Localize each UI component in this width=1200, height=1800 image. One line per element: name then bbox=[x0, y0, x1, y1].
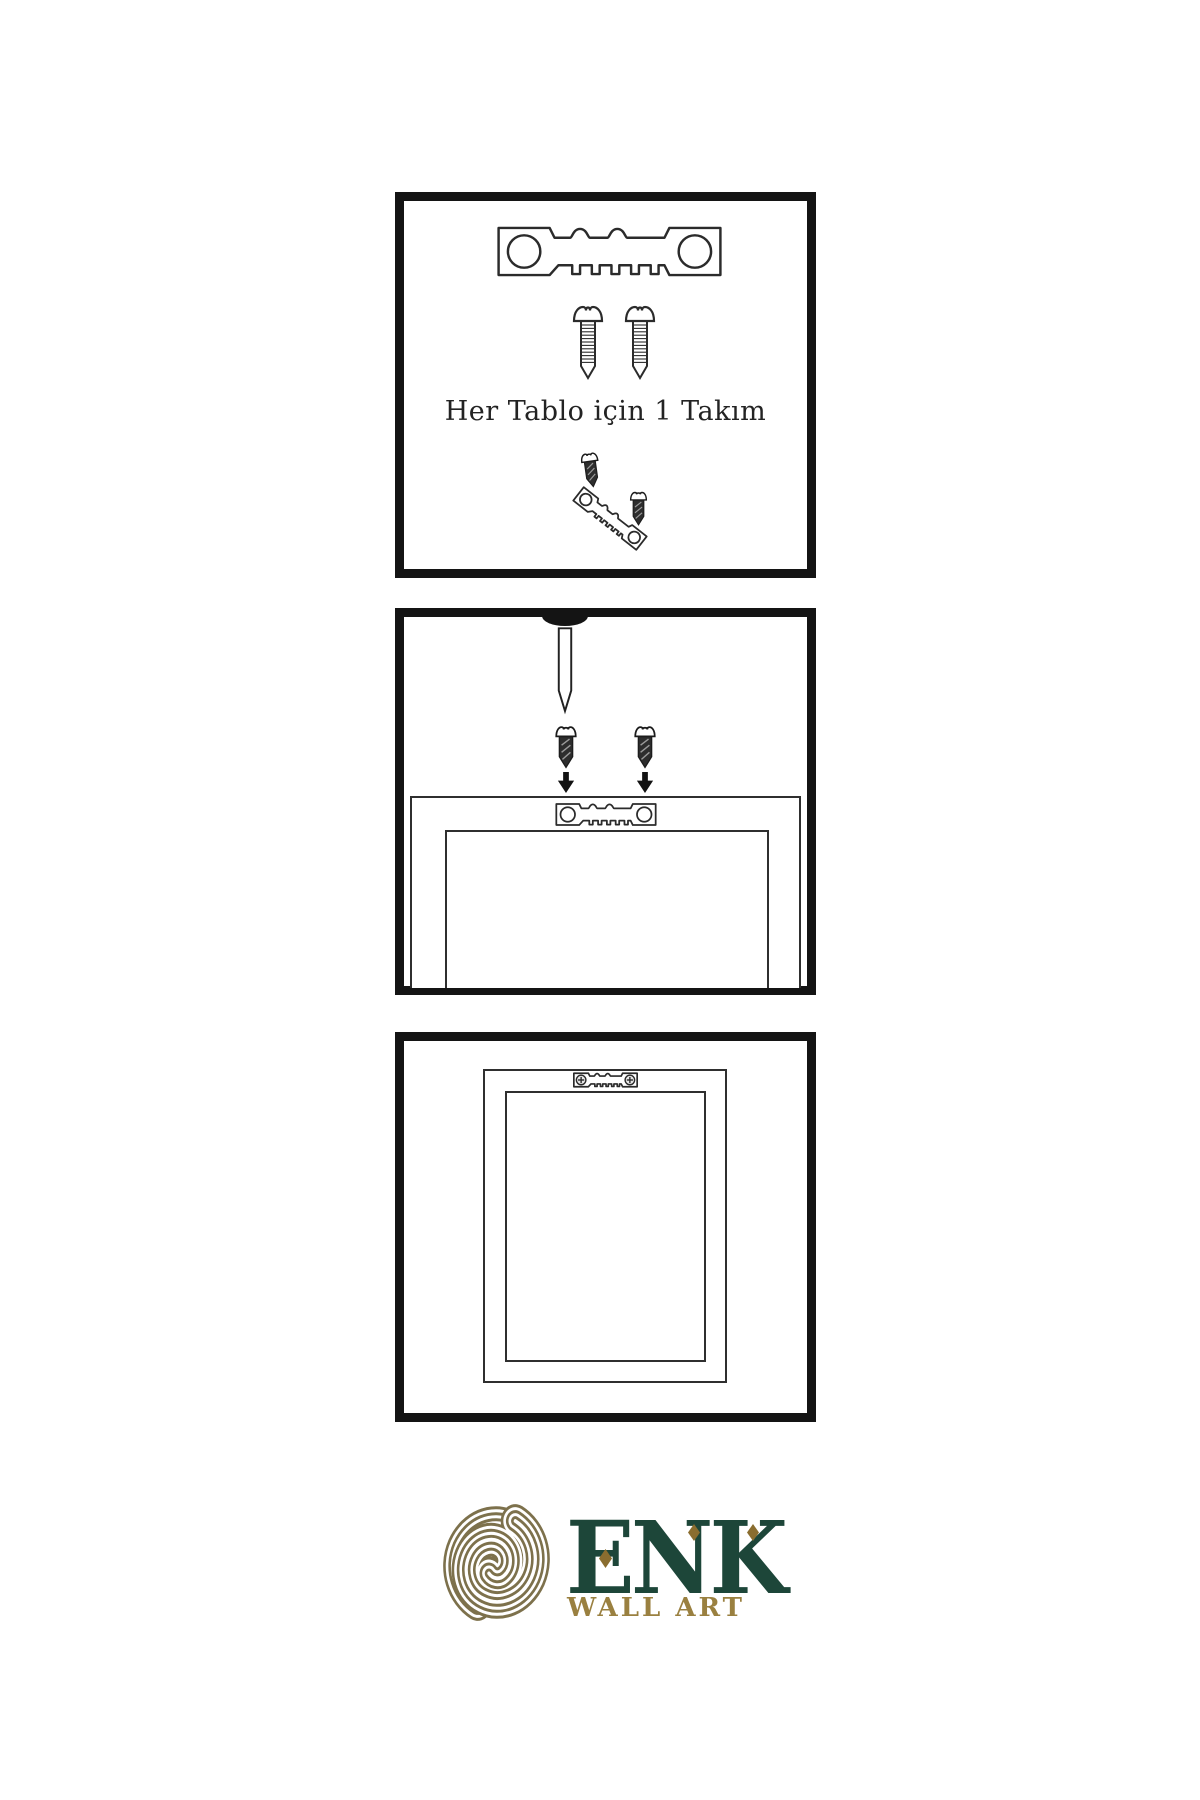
step-1-panel: Her Tablo için 1 Takım bbox=[395, 192, 816, 578]
arrow-down-icon bbox=[636, 772, 654, 793]
screw-icon bbox=[629, 490, 648, 527]
knot-logo-icon bbox=[440, 1497, 553, 1628]
hanging-instructions-sheet: Her Tablo için 1 Takım bbox=[0, 0, 1200, 1800]
frame-inner-outline bbox=[445, 830, 769, 988]
brand-subtitle: WALL ART bbox=[567, 1593, 745, 1623]
step-2-panel bbox=[395, 608, 816, 995]
screw-icon bbox=[571, 303, 605, 381]
frame-inner-outline bbox=[505, 1091, 706, 1362]
screw-icon bbox=[623, 303, 657, 381]
sawtooth-hanger-icon bbox=[555, 802, 657, 827]
screw-icon bbox=[633, 724, 657, 770]
arrow-down-icon bbox=[557, 772, 575, 793]
nail-icon bbox=[557, 624, 573, 718]
sawtooth-hanger-icon bbox=[573, 1072, 638, 1088]
screw-icon bbox=[554, 724, 578, 770]
step-3-panel bbox=[395, 1032, 816, 1422]
sawtooth-hanger-icon bbox=[494, 225, 725, 278]
screw-icon bbox=[578, 450, 603, 490]
kit-caption: Her Tablo için 1 Takım bbox=[404, 396, 807, 427]
